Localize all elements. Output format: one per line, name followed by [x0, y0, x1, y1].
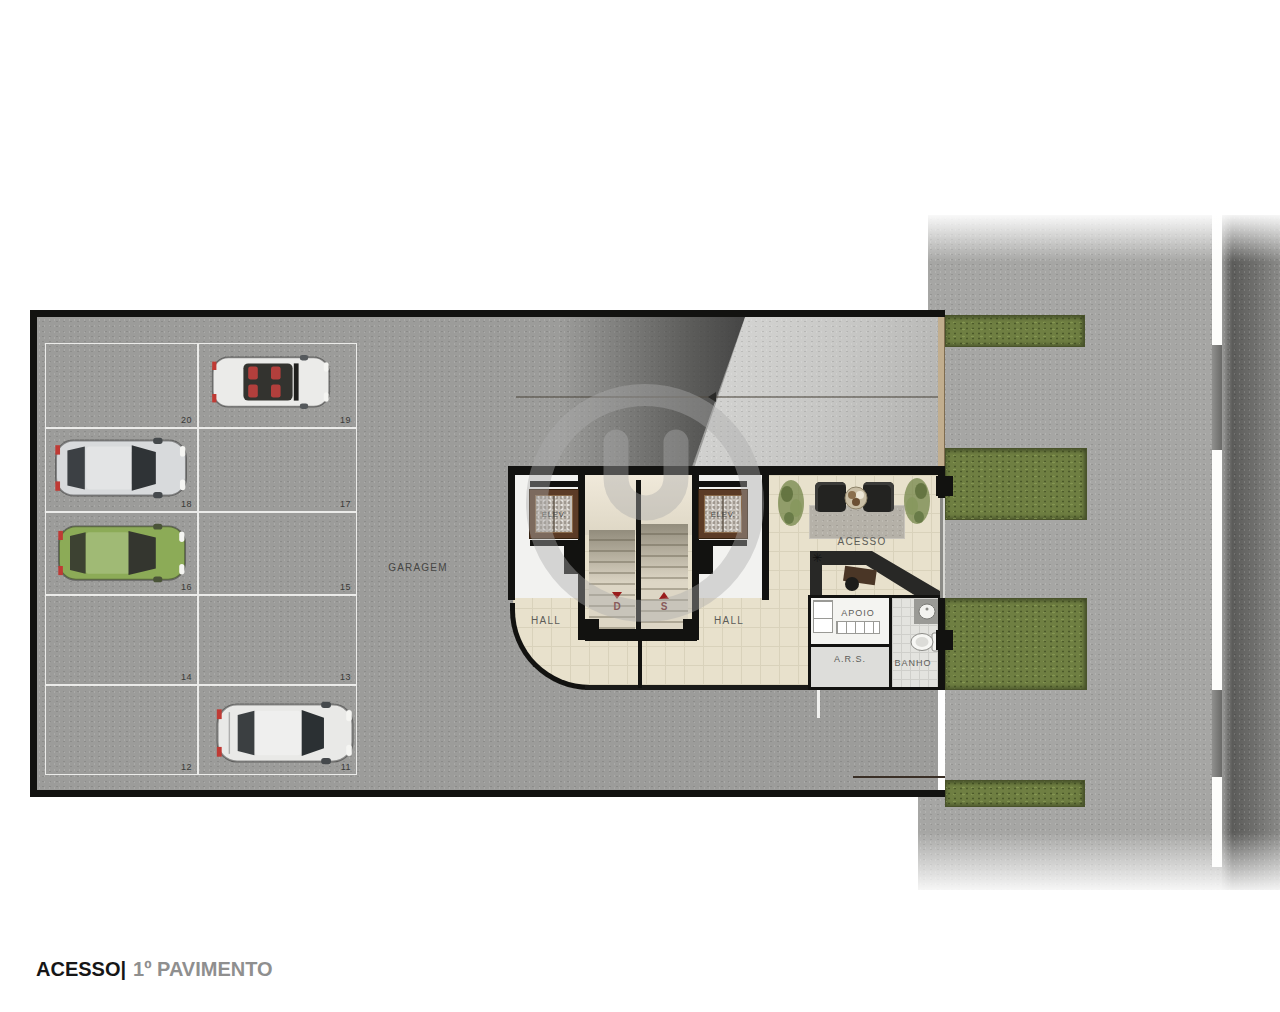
parking-space-15: 15 [198, 512, 357, 595]
plant-right [901, 476, 933, 526]
parking-space-number: 15 [340, 582, 351, 592]
armchair-left [815, 482, 846, 512]
car-space-16 [57, 522, 187, 584]
caption: ACESSO|1º PAVIMENTO [36, 958, 273, 981]
building-border-right-upper [938, 470, 945, 498]
car-space-11 [206, 701, 364, 765]
parking-space-12: 12 [45, 685, 198, 775]
svg-text:✳: ✳ [812, 551, 822, 565]
car-space-18 [54, 436, 188, 500]
parking-space-17: 17 [198, 428, 357, 512]
fade-top [900, 190, 1280, 262]
apoio-label: APOIO [841, 608, 875, 618]
banho-label: BANHO [894, 658, 931, 668]
access-label: ACESSO [838, 536, 887, 547]
ars-room [808, 644, 892, 690]
parking-space-number: 19 [340, 415, 351, 425]
building-border-bottom [30, 790, 945, 797]
parking-space-14: 14 [45, 595, 198, 685]
parking-space-number: 12 [181, 762, 192, 772]
parking-space-number: 14 [181, 672, 192, 682]
building-border-top [30, 310, 945, 317]
garage-label: GARAGEM [388, 562, 448, 573]
floor-plan-canvas: 20191817161514131211 [0, 0, 1280, 1012]
parking-space-20: 20 [45, 343, 198, 428]
sink-icon [917, 602, 937, 621]
facade-glass-line [940, 498, 943, 598]
building-border-left [30, 310, 37, 797]
fade-bottom [860, 832, 1280, 924]
parking-space-13: 13 [198, 595, 357, 685]
caption-title: ACESSO| [36, 958, 126, 980]
building-border-right-lower [938, 598, 945, 690]
car-space-19 [211, 353, 331, 411]
apoio-lockers [836, 621, 880, 634]
side-table [844, 486, 868, 510]
parking-space-number: 13 [340, 672, 351, 682]
apoio-cabinets [813, 600, 833, 633]
watermark-logo-icon [500, 360, 790, 650]
driveway-line-white [817, 690, 820, 718]
caption-subtitle: 1º PAVIMENTO [133, 958, 273, 980]
parking-space-number: 20 [181, 415, 192, 425]
parking-space-number: 17 [340, 499, 351, 509]
ars-label: A.R.S. [834, 654, 866, 664]
driveway-edge-line [853, 776, 945, 778]
parking-space-number: 18 [181, 499, 192, 509]
